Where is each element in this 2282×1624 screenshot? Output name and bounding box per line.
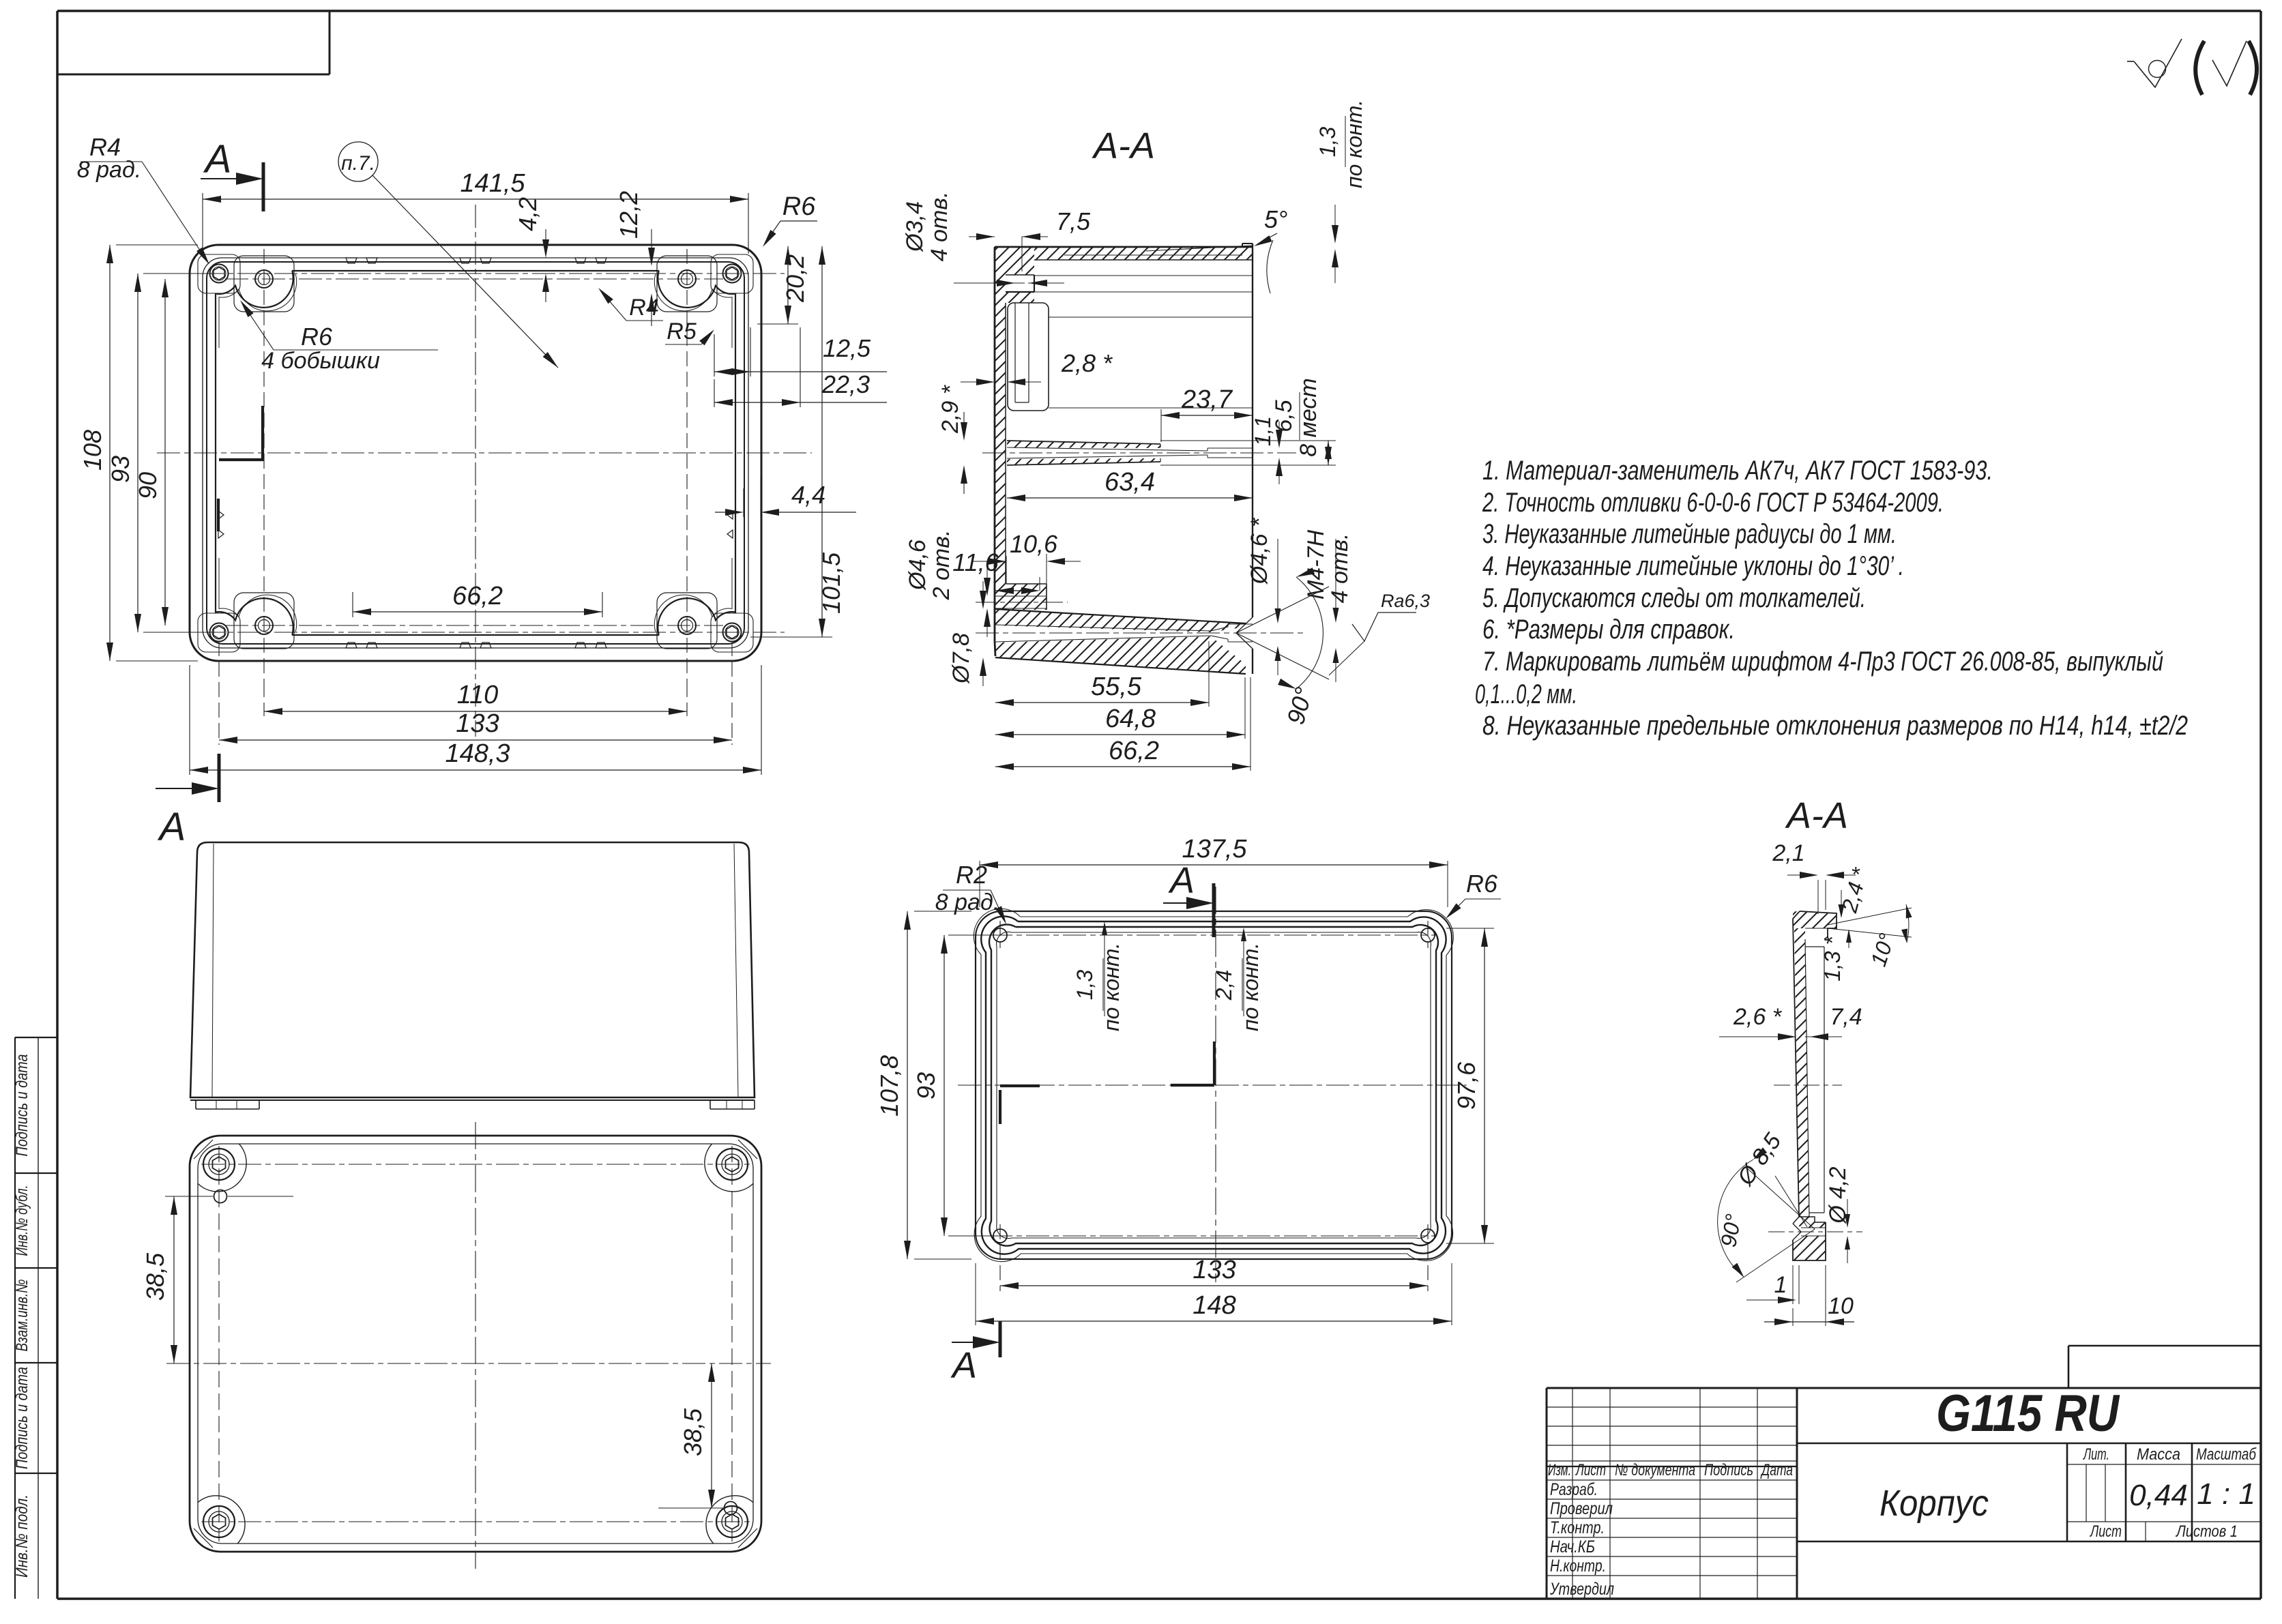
svg-text:6,5: 6,5 <box>1271 400 1297 432</box>
svg-text:4. Неуказанные литейные уклоны: 4. Неуказанные литейные уклоны до 1°30’ … <box>1482 551 1904 581</box>
svg-text:Лист: Лист <box>2090 1522 2122 1541</box>
svg-text:38,5: 38,5 <box>141 1252 169 1301</box>
svg-text:Т.контр.: Т.контр. <box>1550 1518 1605 1537</box>
svg-text:А-А: А-А <box>1092 126 1155 166</box>
svg-text:Масса: Масса <box>2137 1445 2180 1464</box>
svg-text:7. Маркировать литьём шрифтом: 7. Маркировать литьём шрифтом 4-Пр3 ГОСТ… <box>1482 647 2163 677</box>
svg-text:Изм.: Изм. <box>1548 1461 1571 1479</box>
svg-text:А: А <box>950 1345 977 1386</box>
svg-text:93: 93 <box>912 1072 940 1099</box>
svg-text:№ документа: № документа <box>1615 1461 1695 1479</box>
svg-text:4 бобышки: 4 бобышки <box>261 348 380 374</box>
svg-text:Подпись: Подпись <box>1704 1461 1753 1479</box>
svg-text:8 мест: 8 мест <box>1296 378 1321 457</box>
svg-text:22,3: 22,3 <box>821 370 870 398</box>
svg-text:Ø4,6: Ø4,6 <box>905 540 931 591</box>
svg-text:8. Неуказанные предельные откл: 8. Неуказанные предельные отклонения раз… <box>1482 711 2188 741</box>
svg-text:Проверил: Проверил <box>1550 1499 1613 1518</box>
svg-text:2,9 *: 2,9 * <box>937 384 963 434</box>
svg-text:Масштаб: Масштаб <box>2196 1445 2257 1464</box>
svg-text:1,3: 1,3 <box>1072 970 1097 1001</box>
svg-text:20,2: 20,2 <box>781 254 809 303</box>
svg-text:2. Точность отливки 6-0-0-6 ГО: 2. Точность отливки 6-0-0-6 ГОСТ Р 53464… <box>1482 488 1944 518</box>
svg-text:Листов 1: Листов 1 <box>2175 1522 2238 1541</box>
svg-text:по конт.: по конт. <box>1238 943 1263 1031</box>
svg-text:5. Допускаются следы от толкат: 5. Допускаются следы от толкателей. <box>1482 583 1866 613</box>
svg-text:4 отв.: 4 отв. <box>926 192 952 262</box>
svg-text:55,5: 55,5 <box>1091 673 1142 701</box>
svg-text:148,3: 148,3 <box>445 739 510 768</box>
svg-text:2,6 *: 2,6 * <box>1733 1004 1783 1030</box>
svg-text:Подпись и дата: Подпись и дата <box>13 1054 31 1157</box>
svg-text:Нач.КБ: Нач.КБ <box>1550 1537 1595 1556</box>
svg-text:97,6: 97,6 <box>1452 1061 1480 1110</box>
svg-text:2,8 *: 2,8 * <box>1061 349 1113 377</box>
svg-text:133: 133 <box>456 709 499 738</box>
svg-text:64,8: 64,8 <box>1105 705 1156 733</box>
svg-text:Подпись и дата: Подпись и дата <box>13 1367 31 1469</box>
svg-text:11,6: 11,6 <box>952 548 999 576</box>
svg-text:А-А: А-А <box>1785 795 1848 836</box>
svg-text:7,5: 7,5 <box>1056 207 1091 235</box>
svg-text:101,5: 101,5 <box>817 552 845 614</box>
svg-text:4,4: 4,4 <box>791 481 825 509</box>
svg-text:38,5: 38,5 <box>679 1408 707 1456</box>
svg-text:1,3: 1,3 <box>1315 127 1340 158</box>
svg-text:0,1...0,2 мм.: 0,1...0,2 мм. <box>1475 679 1577 709</box>
svg-text:R4: R4 <box>629 295 658 321</box>
svg-text:93: 93 <box>106 456 134 483</box>
svg-text:7,4: 7,4 <box>1830 1004 1862 1030</box>
svg-text:Утвердил: Утвердил <box>1549 1580 1614 1599</box>
svg-text:137,5: 137,5 <box>1182 835 1247 863</box>
svg-text:12,5: 12,5 <box>823 334 871 362</box>
svg-text:1. Материал-заменитель АК7ч, А: 1. Материал-заменитель АК7ч, АК7 ГОСТ 15… <box>1482 456 1993 486</box>
svg-text:6. *Размеры для справок.: 6. *Размеры для справок. <box>1482 615 1735 645</box>
svg-text:Взам.инв.№: Взам.инв.№ <box>13 1280 31 1352</box>
svg-text:G115 RU: G115 RU <box>1936 1385 2120 1443</box>
svg-text:2,1: 2,1 <box>1772 840 1804 866</box>
svg-text:108: 108 <box>78 430 106 471</box>
svg-text:Корпус: Корпус <box>1879 1483 1989 1524</box>
svg-text:1 : 1: 1 : 1 <box>2197 1477 2255 1511</box>
svg-text:R5: R5 <box>667 319 697 344</box>
svg-text:Ø3,4: Ø3,4 <box>902 201 928 252</box>
svg-text:10: 10 <box>1828 1293 1854 1319</box>
svg-text:66,2: 66,2 <box>452 582 503 610</box>
svg-text:8 рад.: 8 рад. <box>77 157 141 183</box>
svg-text:Дата: Дата <box>1760 1461 1793 1479</box>
svg-text:Лист: Лист <box>1575 1461 1606 1479</box>
svg-text:63,4: 63,4 <box>1105 468 1155 497</box>
svg-text:2,4: 2,4 <box>1212 970 1236 1001</box>
svg-text:110: 110 <box>457 681 499 709</box>
svg-text:23,7: 23,7 <box>1181 385 1233 414</box>
svg-text:п.7.: п.7. <box>341 152 375 175</box>
svg-text:10,6: 10,6 <box>1010 530 1058 558</box>
svg-text:по конт.: по конт. <box>1342 100 1366 188</box>
svg-text:Инв.№ подл.: Инв.№ подл. <box>13 1494 31 1578</box>
svg-text:0,44: 0,44 <box>2129 1479 2188 1512</box>
svg-text:66,2: 66,2 <box>1109 737 1159 765</box>
svg-text:4,2: 4,2 <box>514 197 542 231</box>
svg-text:М4-7Н: М4-7Н <box>1303 530 1329 600</box>
svg-text:12,2: 12,2 <box>615 191 643 239</box>
svg-text:Лит.: Лит. <box>2083 1445 2109 1464</box>
svg-text:Инв.№ дубл.: Инв.№ дубл. <box>13 1185 31 1256</box>
svg-text:Ø7,8: Ø7,8 <box>948 633 974 684</box>
svg-text:Н.контр.: Н.контр. <box>1550 1556 1606 1576</box>
svg-text:90: 90 <box>134 472 162 499</box>
svg-text:3. Неуказанные литейные радиус: 3. Неуказанные литейные радиусы до 1 мм. <box>1482 519 1897 549</box>
svg-text:А: А <box>203 137 232 181</box>
svg-text:R6: R6 <box>301 323 333 351</box>
svg-text:Разраб.: Разраб. <box>1550 1480 1598 1499</box>
svg-text:133: 133 <box>1193 1256 1235 1284</box>
svg-text:107,8: 107,8 <box>875 1055 903 1117</box>
svg-text:А: А <box>1168 860 1195 901</box>
svg-text:5°: 5° <box>1264 205 1287 233</box>
svg-text:R6: R6 <box>1466 870 1498 898</box>
svg-text:по конт.: по конт. <box>1099 943 1124 1031</box>
svg-text:А: А <box>158 805 186 849</box>
svg-text:4 отв.: 4 отв. <box>1327 533 1353 604</box>
svg-text:1: 1 <box>1774 1272 1787 1298</box>
svg-text:141,5: 141,5 <box>460 169 525 198</box>
svg-text:1,3 *: 1,3 * <box>1820 936 1845 981</box>
svg-text:Ra6,3: Ra6,3 <box>1381 591 1430 611</box>
svg-text:R6: R6 <box>782 192 816 221</box>
svg-text:148: 148 <box>1193 1291 1235 1320</box>
svg-text:Ø4,6 *: Ø4,6 * <box>1246 517 1272 585</box>
svg-text:2 отв.: 2 отв. <box>928 530 954 601</box>
